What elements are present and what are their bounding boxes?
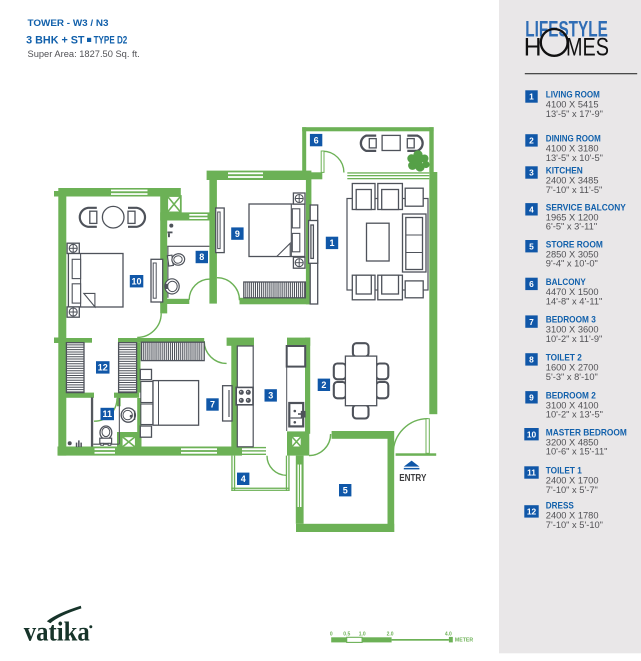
svg-text:DRESS: DRESS (546, 501, 574, 511)
svg-text:BALCONY: BALCONY (546, 277, 587, 287)
svg-text:KITCHEN: KITCHEN (546, 166, 583, 176)
svg-text:2: 2 (321, 380, 326, 390)
svg-text:MASTER BEDROOM: MASTER BEDROOM (546, 427, 627, 437)
svg-text:4.0: 4.0 (445, 631, 452, 637)
svg-text:vatika: vatika (24, 617, 90, 647)
svg-text:6: 6 (314, 135, 319, 145)
svg-text:ENTRY: ENTRY (399, 473, 426, 484)
svg-text:4: 4 (529, 205, 534, 215)
svg-text:7: 7 (529, 317, 534, 327)
svg-text:6: 6 (529, 279, 534, 289)
svg-text:10: 10 (527, 429, 537, 439)
svg-text:5: 5 (343, 485, 348, 495)
svg-text:SERVICE BALCONY: SERVICE BALCONY (546, 202, 627, 212)
svg-text:H: H (524, 34, 542, 61)
svg-text:9: 9 (529, 393, 534, 403)
svg-text:10'-2" x 13'-5": 10'-2" x 13'-5" (546, 410, 603, 420)
svg-text:9: 9 (235, 229, 240, 239)
svg-text:7'-10" x 5'-10": 7'-10" x 5'-10" (546, 520, 603, 530)
svg-text:0: 0 (330, 631, 333, 637)
svg-text:13'-5" x 10'-5": 13'-5" x 10'-5" (546, 153, 603, 163)
svg-text:2: 2 (529, 136, 534, 146)
svg-text:9'-4" x 10'-0": 9'-4" x 10'-0" (546, 259, 598, 269)
svg-text:14'-8" x 4'-11": 14'-8" x 4'-11" (546, 296, 603, 306)
svg-text:8: 8 (199, 252, 204, 262)
svg-text:12: 12 (527, 507, 537, 517)
svg-text:7'-10" x 5'-7": 7'-10" x 5'-7" (546, 485, 598, 495)
svg-text:12: 12 (98, 363, 108, 373)
svg-text:2.0: 2.0 (387, 631, 394, 637)
svg-text:3: 3 (268, 391, 273, 401)
svg-text:TYPE D2: TYPE D2 (94, 34, 128, 46)
svg-text:STORE ROOM: STORE ROOM (546, 239, 603, 249)
svg-text:7'-10" x 11'-5": 7'-10" x 11'-5" (546, 185, 603, 195)
svg-text:8: 8 (529, 355, 534, 365)
svg-text:METER: METER (455, 637, 474, 643)
svg-text:MES: MES (566, 34, 609, 61)
svg-text:Super Area: 1827.50 Sq. ft.: Super Area: 1827.50 Sq. ft. (28, 49, 140, 60)
svg-text:13'-5" x 17'-9": 13'-5" x 17'-9" (546, 109, 603, 119)
svg-text:1: 1 (329, 238, 334, 248)
svg-text:4: 4 (241, 474, 246, 484)
svg-text:TOILET 1: TOILET 1 (546, 466, 582, 476)
svg-text:LIVING ROOM: LIVING ROOM (546, 90, 600, 100)
svg-text:3: 3 (529, 168, 534, 178)
svg-text:7: 7 (210, 400, 215, 410)
svg-text:5: 5 (529, 241, 534, 251)
svg-text:1: 1 (529, 92, 534, 102)
svg-text:5'-3" x 8'-10": 5'-3" x 8'-10" (546, 372, 598, 382)
svg-text:11: 11 (102, 409, 112, 419)
svg-text:BEDROOM 3: BEDROOM 3 (546, 315, 596, 325)
svg-text:TOILET 2: TOILET 2 (546, 353, 582, 363)
svg-text:DINING ROOM: DINING ROOM (546, 134, 601, 144)
svg-text:TOWER - W3 / N3: TOWER - W3 / N3 (28, 18, 109, 28)
svg-text:3 BHK + ST: 3 BHK + ST (26, 34, 85, 46)
svg-text:11: 11 (527, 468, 536, 478)
svg-text:10: 10 (132, 276, 142, 286)
svg-text:BEDROOM 2: BEDROOM 2 (546, 390, 596, 400)
svg-text:1.0: 1.0 (359, 631, 366, 637)
svg-text:0.5: 0.5 (343, 631, 350, 637)
svg-text:6'-5" x 3'-11": 6'-5" x 3'-11" (546, 222, 597, 232)
svg-text:10'-2" x 11'-9": 10'-2" x 11'-9" (546, 334, 603, 344)
svg-text:10'-6" x 15'-11": 10'-6" x 15'-11" (546, 447, 608, 457)
